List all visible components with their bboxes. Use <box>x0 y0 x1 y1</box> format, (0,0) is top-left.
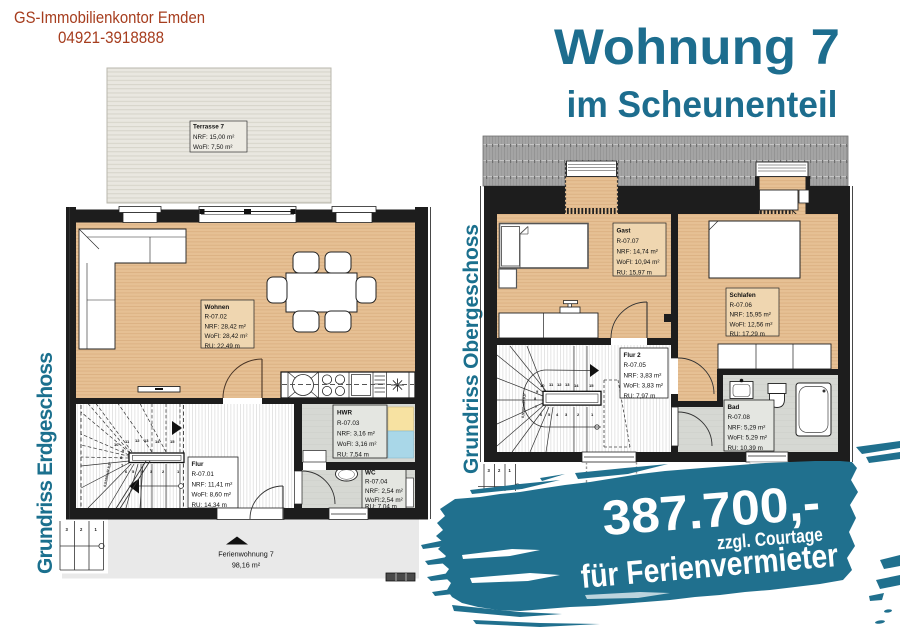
svg-text:Terrasse 7: Terrasse 7 <box>193 124 225 131</box>
svg-text:Flur: Flur <box>192 461 204 468</box>
svg-text:04921-3918888: 04921-3918888 <box>58 28 164 47</box>
svg-text:Bad: Bad <box>728 404 740 411</box>
svg-text:10: 10 <box>540 383 545 388</box>
svg-text:WoFl: 3,16 m²: WoFl: 3,16 m² <box>337 441 376 448</box>
svg-text:13: 13 <box>144 438 149 443</box>
svg-text:WoFl: 10,94 m²: WoFl: 10,94 m² <box>617 259 660 266</box>
svg-text:Grundriss Erdgeschoss: Grundriss Erdgeschoss <box>34 352 57 574</box>
svg-text:14: 14 <box>574 383 579 388</box>
svg-text:GS-Immobilienkontor Emden: GS-Immobilienkontor Emden <box>14 8 205 27</box>
svg-text:HWR: HWR <box>337 410 352 417</box>
svg-text:WoFl: 12,56 m²: WoFl: 12,56 m² <box>730 321 773 328</box>
svg-text:R-07.03: R-07.03 <box>337 420 360 427</box>
svg-text:12: 12 <box>557 382 562 387</box>
svg-text:NRF: 28,42 m²: NRF: 28,42 m² <box>205 323 246 330</box>
svg-text:NRF: 3,83 m²: NRF: 3,83 m² <box>624 372 662 379</box>
svg-text:R-07.05: R-07.05 <box>624 362 647 369</box>
svg-text:Flur 2: Flur 2 <box>624 352 642 359</box>
svg-text:98,16 m²: 98,16 m² <box>232 561 261 570</box>
svg-text:NRF: 14,74 m²: NRF: 14,74 m² <box>617 249 658 256</box>
svg-text:RU: 7,97 m: RU: 7,97 m <box>624 393 656 400</box>
svg-text:WoFl: 3,83 m²: WoFl: 3,83 m² <box>624 383 663 390</box>
svg-text:Schlafen: Schlafen <box>730 292 756 299</box>
svg-text:R-07.02: R-07.02 <box>205 314 228 321</box>
svg-text:Grundriss Obergeschoss: Grundriss Obergeschoss <box>460 224 483 474</box>
svg-text:NRF: 3,16 m²: NRF: 3,16 m² <box>337 431 375 438</box>
svg-text:R-07.08: R-07.08 <box>728 414 751 421</box>
svg-text:RU: 22,49 m: RU: 22,49 m <box>205 343 240 350</box>
svg-text:12: 12 <box>135 438 140 443</box>
svg-text:NRF: 11,41 m²: NRF: 11,41 m² <box>192 481 233 488</box>
svg-text:RU: 7,54 m: RU: 7,54 m <box>337 452 369 459</box>
svg-text:RU: 15,97 m: RU: 15,97 m <box>617 270 652 277</box>
svg-text:WoFl: 5,29 m²: WoFl: 5,29 m² <box>728 435 767 442</box>
svg-text:R-07.01: R-07.01 <box>192 471 215 478</box>
svg-text:RU: 10,39 m: RU: 10,39 m <box>728 445 763 452</box>
svg-text:Wohnen: Wohnen <box>205 304 230 311</box>
svg-text:NRF: 5,29 m²: NRF: 5,29 m² <box>728 424 766 431</box>
svg-text:WC: WC <box>365 470 376 477</box>
svg-text:R-07.06: R-07.06 <box>730 302 753 309</box>
svg-text:15: 15 <box>589 383 594 388</box>
svg-text:im Scheunenteil: im Scheunenteil <box>567 84 838 125</box>
svg-text:NRF: 2,54 m²: NRF: 2,54 m² <box>365 488 403 495</box>
svg-text:WoFl: 8,60 m²: WoFl: 8,60 m² <box>192 492 231 499</box>
svg-text:RU: 17,29 m: RU: 17,29 m <box>730 331 765 338</box>
svg-text:WoFl: 28,42 m²: WoFl: 28,42 m² <box>205 333 248 340</box>
svg-text:R-07.07: R-07.07 <box>617 238 640 245</box>
svg-text:10: 10 <box>114 442 119 447</box>
svg-text:Wohnung 7: Wohnung 7 <box>554 19 840 75</box>
svg-text:Ferienwohnung 7: Ferienwohnung 7 <box>218 550 274 559</box>
svg-text:NRF: 15,00 m²: NRF: 15,00 m² <box>193 134 234 141</box>
svg-text:Gast: Gast <box>617 228 632 235</box>
svg-text:14: 14 <box>155 439 160 444</box>
svg-text:WoFl: 7,50 m²: WoFl: 7,50 m² <box>193 144 232 151</box>
svg-text:13: 13 <box>565 382 570 387</box>
svg-text:R-07.04: R-07.04 <box>365 479 388 486</box>
svg-text:15: 15 <box>170 439 175 444</box>
svg-text:NRF: 15,95 m²: NRF: 15,95 m² <box>730 312 771 319</box>
